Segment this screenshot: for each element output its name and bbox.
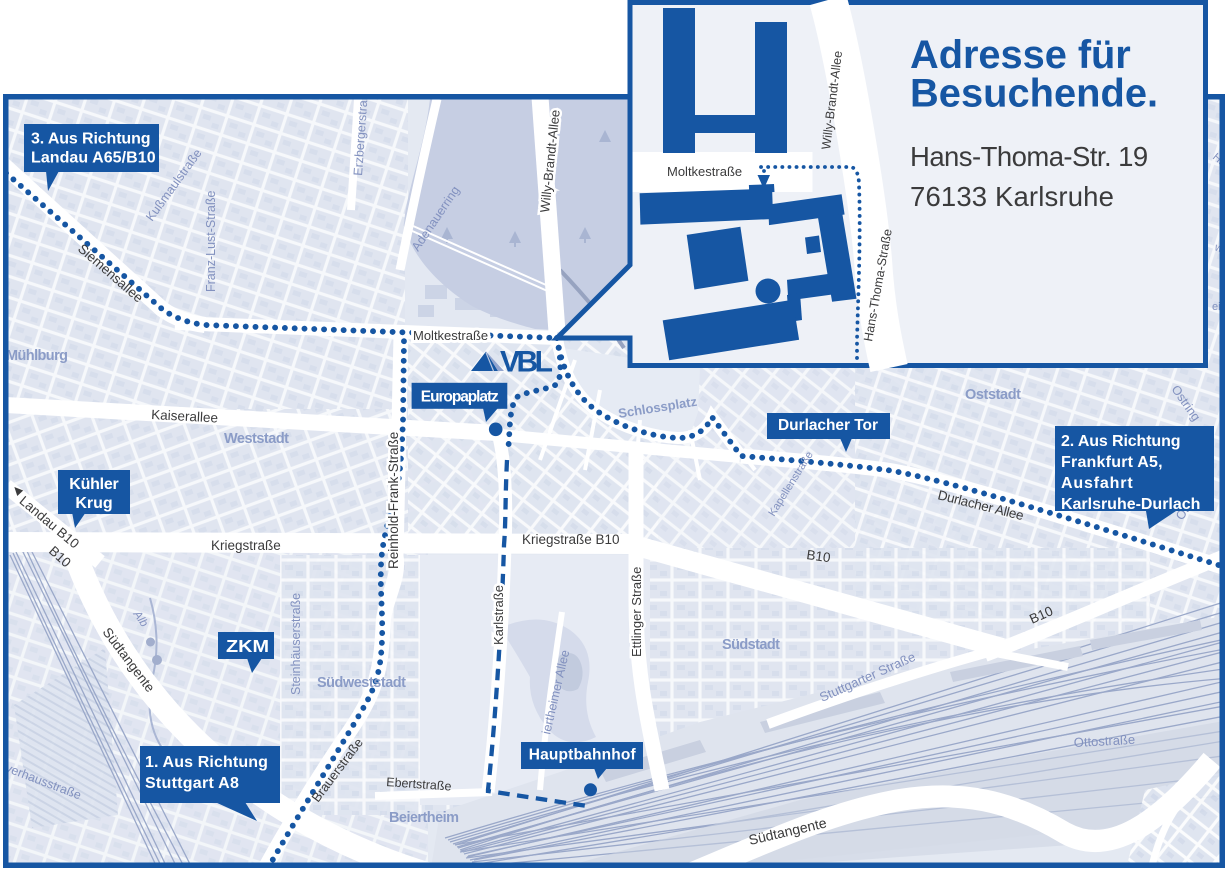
- svg-text:Ottostraße: Ottostraße: [1073, 732, 1135, 750]
- svg-text:Europaplatz: Europaplatz: [421, 389, 499, 406]
- svg-text:Ettlinger Straße: Ettlinger Straße: [629, 567, 644, 657]
- svg-text:Moltkestraße: Moltkestraße: [413, 328, 488, 343]
- svg-text:Südweststadt: Südweststadt: [317, 675, 406, 691]
- svg-text:Steinhäuserstraße: Steinhäuserstraße: [289, 593, 303, 695]
- svg-text:Krug: Krug: [75, 495, 112, 512]
- svg-text:3. Aus Richtung: 3. Aus Richtung: [31, 131, 151, 148]
- svg-text:Ausfahrt: Ausfahrt: [1061, 475, 1133, 492]
- svg-text:Reinhold-Frank-Straße: Reinhold-Frank-Straße: [386, 432, 401, 569]
- svg-text:Karlsruhe-Durlach: Karlsruhe-Durlach: [1061, 496, 1200, 513]
- svg-text:Stuttgart A8: Stuttgart A8: [145, 775, 239, 792]
- svg-text:Kriegstraße B10: Kriegstraße B10: [522, 532, 620, 547]
- svg-text:Beiertheim: Beiertheim: [389, 810, 459, 826]
- svg-text:Hauptbahnhof: Hauptbahnhof: [529, 747, 637, 764]
- svg-text:Weststadt: Weststadt: [224, 431, 289, 447]
- svg-text:76133 Karlsruhe: 76133 Karlsruhe: [910, 181, 1114, 212]
- svg-text:Durlacher Tor: Durlacher Tor: [778, 417, 878, 434]
- svg-text:ZKM: ZKM: [226, 636, 269, 656]
- svg-text:Kühler: Kühler: [69, 476, 119, 493]
- svg-text:Oststadt: Oststadt: [965, 387, 1021, 403]
- svg-text:1. Aus Richtung: 1. Aus Richtung: [145, 754, 268, 771]
- svg-text:Karlstraße: Karlstraße: [491, 585, 506, 645]
- svg-text:Frankfurt A5,: Frankfurt A5,: [1061, 454, 1163, 471]
- svg-text:VBL: VBL: [500, 346, 553, 379]
- svg-text:Kriegstraße: Kriegstraße: [211, 538, 281, 553]
- svg-text:Mühlburg: Mühlburg: [6, 348, 68, 364]
- svg-text:Moltkestraße: Moltkestraße: [667, 164, 742, 179]
- svg-text:Franz-Lust-Straße: Franz-Lust-Straße: [204, 191, 218, 292]
- svg-text:Besuchende.: Besuchende.: [910, 72, 1158, 116]
- svg-text:Adresse für: Adresse für: [910, 33, 1131, 77]
- svg-text:2. Aus Richtung: 2. Aus Richtung: [1061, 433, 1181, 450]
- svg-text:Südstadt: Südstadt: [722, 637, 780, 653]
- svg-text:Landau A65/B10: Landau A65/B10: [31, 150, 156, 167]
- svg-text:Hans-Thoma-Str. 19: Hans-Thoma-Str. 19: [910, 141, 1148, 172]
